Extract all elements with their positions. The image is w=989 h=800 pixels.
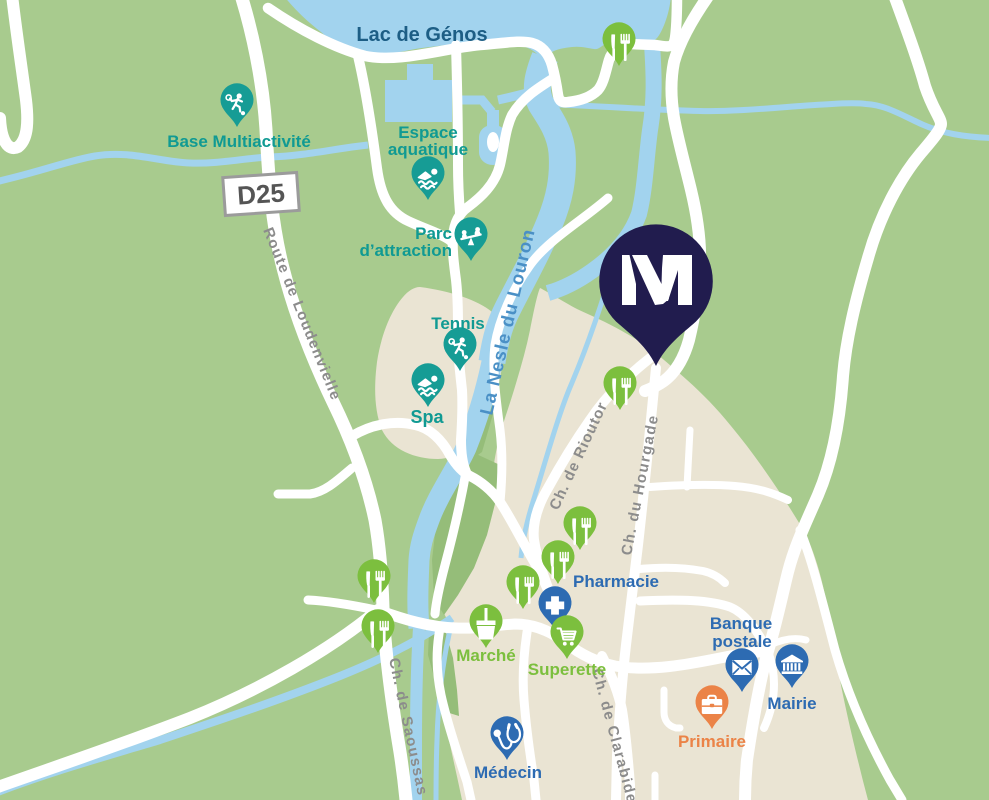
svg-text:Pharmacie: Pharmacie (573, 572, 659, 591)
svg-text:Lac de Génos: Lac de Génos (356, 24, 487, 46)
svg-text:Banque: Banque (710, 614, 772, 633)
svg-text:Superette: Superette (528, 660, 606, 679)
svg-text:Médecin: Médecin (474, 763, 542, 782)
svg-text:d’attraction: d’attraction (359, 241, 452, 260)
svg-text:aquatique: aquatique (388, 140, 468, 159)
svg-text:postale: postale (712, 632, 772, 651)
svg-text:Primaire: Primaire (678, 732, 746, 751)
svg-text:Tennis: Tennis (431, 314, 485, 333)
svg-text:Marché: Marché (456, 646, 516, 665)
svg-text:Spa: Spa (410, 407, 444, 427)
svg-text:D25: D25 (236, 177, 286, 210)
svg-text:Mairie: Mairie (767, 694, 816, 713)
svg-text:Base Multiactivité: Base Multiactivité (167, 132, 311, 151)
